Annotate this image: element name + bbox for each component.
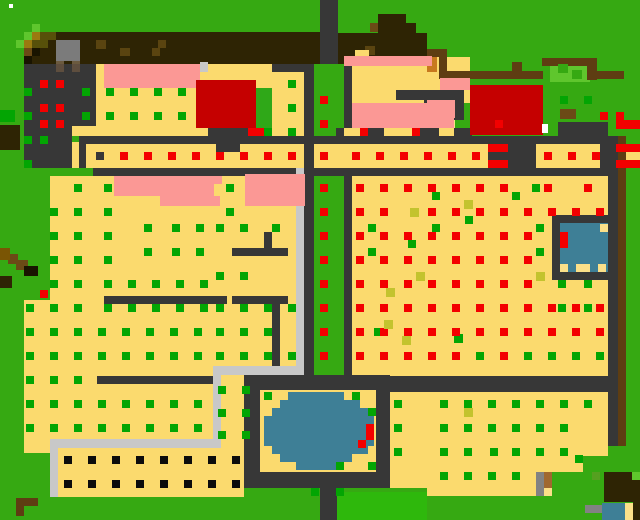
crop-dot-green: [512, 424, 520, 432]
crop-dot-green: [336, 462, 344, 470]
seed-dot-black: [136, 480, 144, 488]
seed-dot-black: [208, 456, 216, 464]
crop-dot-green: [536, 400, 544, 408]
crop-dot-green: [464, 400, 472, 408]
green-cell: [575, 455, 583, 463]
crop-dot-red: [356, 184, 364, 192]
seed-dot-black: [64, 480, 72, 488]
crop-dot-green: [512, 472, 520, 480]
dirt-spot: [158, 40, 166, 48]
dirt-strip: [378, 14, 406, 33]
roadside-brown: [16, 506, 24, 516]
crop-dot-red: [404, 328, 412, 336]
field-yellow: [72, 126, 96, 136]
crop-dot-green: [26, 304, 34, 312]
pond-notch: [600, 224, 608, 232]
road-and-structures: [420, 128, 439, 136]
gray-prop: [536, 472, 544, 496]
game-map[interactable]: [0, 0, 640, 520]
crop-dot-green: [98, 352, 106, 360]
road-and-structures: [344, 176, 352, 376]
crop-dot-green: [218, 386, 226, 394]
crop-dot-red: [404, 256, 412, 264]
pink-roof: [104, 64, 200, 88]
red-prop: [360, 128, 368, 136]
crop-dot-green: [368, 224, 376, 232]
crop-dot-green: [104, 184, 112, 192]
crop-dot-red: [428, 328, 436, 336]
walk-dot-dark: [224, 144, 232, 152]
road-and-structures: [508, 136, 536, 168]
dirt-spot: [96, 40, 106, 49]
crop-dot-green: [50, 304, 58, 312]
crop-dot-red: [476, 208, 484, 216]
crop-dot-red: [192, 152, 200, 160]
crop-dot-red: [428, 304, 436, 312]
crop-dot-green: [154, 112, 162, 120]
crop-dot-green: [152, 280, 160, 288]
crop-dot-green: [170, 400, 178, 408]
road-and-structures: [304, 64, 314, 375]
crop-dot-green: [50, 400, 58, 408]
crop-dot-olive: [410, 208, 419, 217]
pink-roof: [344, 56, 432, 66]
tree-darkolive: [40, 32, 56, 40]
tree-darkolive: [32, 40, 48, 48]
crop-dot-red: [500, 232, 508, 240]
crop-dot-red: [56, 120, 64, 128]
road-and-structures: [390, 376, 608, 392]
crop-dot-red: [56, 80, 64, 88]
crop-dot-green: [74, 184, 82, 192]
crop-dot-green: [122, 424, 130, 432]
crop-dot-green: [264, 304, 272, 312]
pond-water: [272, 446, 368, 454]
crop-dot-red: [428, 256, 436, 264]
crop-dot-green: [440, 400, 448, 408]
crop-dot-green: [194, 352, 202, 360]
crop-dot-red: [40, 120, 48, 128]
crop-dot-olive: [402, 336, 411, 345]
seed-dot-black: [208, 480, 216, 488]
crop-dot-green: [216, 352, 224, 360]
crop-dot-red: [240, 152, 248, 160]
road-and-structures: [232, 296, 288, 304]
road-and-structures: [104, 296, 227, 304]
crop-dot-green: [146, 352, 154, 360]
crop-dot-green: [24, 88, 32, 96]
crop-dot-green: [194, 328, 202, 336]
crop-dot-green: [288, 128, 296, 136]
road-and-structures: [208, 128, 248, 136]
crop-dot-green: [440, 424, 448, 432]
crop-dot-green: [432, 192, 440, 200]
crop-dot-green: [558, 304, 566, 312]
crop-dot-red: [428, 280, 436, 288]
seed-dot-black: [184, 480, 192, 488]
crop-dot-green: [176, 280, 184, 288]
crop-dot-red: [548, 208, 556, 216]
road-and-structures: [232, 248, 288, 256]
crop-dot-green: [240, 328, 248, 336]
tree-cells: [32, 24, 40, 32]
crop-dot-green: [464, 472, 472, 480]
road-and-structures: [336, 128, 344, 136]
crop-dot-green: [512, 192, 520, 200]
tree-gold: [24, 40, 32, 48]
crop-dot-green: [336, 488, 344, 496]
crop-dot-red: [320, 96, 328, 104]
field-yellow: [58, 453, 244, 497]
crop-dot-green: [152, 304, 160, 312]
crop-dot-green: [288, 304, 296, 312]
crop-dot-green: [240, 272, 248, 280]
crop-dot-green: [440, 472, 448, 480]
crop-dot-green: [288, 352, 296, 360]
crop-dot-red: [40, 104, 48, 112]
crop-dot-green: [536, 448, 544, 456]
green-cell: [0, 110, 15, 122]
seed-dot-black: [88, 456, 96, 464]
crop-dot-green: [288, 104, 296, 112]
field-yellow: [50, 176, 304, 376]
crop-dot-red: [476, 280, 484, 288]
crop-dot-green: [264, 128, 272, 136]
road-and-structures: [320, 487, 337, 520]
crop-dot-red: [452, 280, 460, 288]
crop-dot-red: [548, 304, 556, 312]
seed-dot-black: [160, 456, 168, 464]
tan-prop: [544, 472, 552, 488]
pond-water: [296, 462, 338, 470]
crop-dot-green: [368, 462, 376, 470]
cream-cell: [544, 488, 552, 496]
roadside-brown: [618, 136, 626, 446]
crop-dot-red: [120, 152, 128, 160]
seed-dot-black: [64, 456, 72, 464]
roadside-brown: [512, 62, 522, 79]
crop-dot-red: [320, 120, 328, 128]
seed-dot-black: [232, 480, 240, 488]
crop-dot-green: [536, 224, 544, 232]
crop-dot-red: [400, 152, 408, 160]
crop-dot-red: [320, 208, 328, 216]
red-prop: [616, 120, 640, 129]
road-and-structures: [264, 232, 272, 248]
crop-dot-green: [74, 256, 82, 264]
crop-dot-green: [104, 304, 112, 312]
crop-dot-green: [178, 88, 186, 96]
crop-dot-green: [128, 280, 136, 288]
crop-dot-green: [104, 208, 112, 216]
crop-dot-red: [320, 304, 328, 312]
crop-dot-green: [98, 424, 106, 432]
crop-dot-green: [170, 424, 178, 432]
crop-dot-green: [26, 352, 34, 360]
roadside-brown: [592, 71, 624, 79]
crop-dot-green: [512, 448, 520, 456]
crop-dot-green: [196, 248, 204, 256]
crop-dot-red: [596, 208, 604, 216]
crop-dot-green: [74, 424, 82, 432]
crop-dot-red: [500, 328, 508, 336]
seed-dot-black: [112, 456, 120, 464]
crop-dot-green: [216, 272, 224, 280]
light-gray-path: [213, 375, 221, 439]
crop-dot-green: [74, 376, 82, 384]
crop-dot-green: [50, 280, 58, 288]
pond-notch: [576, 264, 590, 272]
crop-dot-green: [146, 328, 154, 336]
crop-dot-red: [500, 352, 508, 360]
crop-dot-green: [144, 248, 152, 256]
crop-dot-green: [104, 232, 112, 240]
crop-dot-red: [596, 304, 604, 312]
crop-dot-green: [490, 448, 498, 456]
crop-dot-red: [544, 152, 552, 160]
crop-dot-red: [288, 152, 296, 160]
seed-dot-black: [232, 456, 240, 464]
pond-notch: [598, 264, 606, 272]
pond-water: [280, 454, 352, 462]
red-prop: [488, 160, 508, 168]
crop-dot-red: [524, 256, 532, 264]
crop-dot-red: [452, 304, 460, 312]
red-prop: [488, 144, 508, 152]
road-and-structures: [97, 376, 213, 384]
crop-dot-green: [104, 280, 112, 288]
pink-roof: [160, 196, 220, 206]
crop-dot-red: [500, 184, 508, 192]
light-gray-path: [50, 448, 58, 497]
crop-dot-red: [380, 280, 388, 288]
crop-dot-green: [178, 112, 186, 120]
crop-dot-red: [448, 152, 456, 160]
crop-dot-green: [548, 352, 556, 360]
crop-dot-green: [24, 136, 32, 144]
seed-dot-black: [88, 480, 96, 488]
crop-dot-red: [452, 184, 460, 192]
crop-dot-green: [128, 304, 136, 312]
red-prop: [495, 120, 503, 128]
pond-water: [602, 503, 625, 520]
crop-dot-red: [320, 352, 328, 360]
crop-dot-red: [404, 304, 412, 312]
crop-dot-red: [356, 208, 364, 216]
crop-dot-red: [356, 304, 364, 312]
tree-dark: [32, 48, 40, 56]
crop-dot-green: [488, 400, 496, 408]
crop-dot-red: [472, 152, 480, 160]
red-prop: [412, 128, 420, 136]
crop-dot-green: [218, 409, 226, 417]
crop-dot-green: [26, 424, 34, 432]
field-yellow: [71, 142, 79, 168]
crop-dot-red: [320, 328, 328, 336]
crop-dot-red: [476, 232, 484, 240]
crop-dot-green: [24, 112, 32, 120]
crop-dot-red: [524, 208, 532, 216]
crop-dot-green: [24, 160, 32, 168]
crop-dot-green: [560, 400, 568, 408]
crop-dot-green: [170, 352, 178, 360]
crop-dot-red: [424, 152, 432, 160]
crop-dot-green: [311, 488, 319, 496]
crop-dot-red: [592, 152, 600, 160]
crop-dot-red: [376, 152, 384, 160]
crop-dot-green: [172, 224, 180, 232]
crop-dot-green: [74, 304, 82, 312]
crop-dot-green: [560, 424, 568, 432]
crop-dot-green: [130, 88, 138, 96]
crop-dot-red: [428, 232, 436, 240]
crop-dot-green: [50, 232, 58, 240]
crop-dot-green: [98, 400, 106, 408]
road-and-structures: [272, 64, 304, 72]
pond-notch: [560, 264, 568, 272]
crop-dot-green: [104, 256, 112, 264]
road-and-structures: [344, 64, 352, 128]
crop-dot-red: [356, 232, 364, 240]
crop-dot-red: [596, 328, 604, 336]
seed-dot-black: [112, 480, 120, 488]
crop-dot-red: [356, 280, 364, 288]
crop-dot-green: [200, 304, 208, 312]
walk-dot-dark: [232, 144, 240, 152]
crop-dot-green: [170, 328, 178, 336]
crop-dot-green: [536, 248, 544, 256]
crop-dot-green: [596, 352, 604, 360]
crop-dot-green: [122, 328, 130, 336]
crop-dot-green: [584, 400, 592, 408]
crop-dot-red: [320, 256, 328, 264]
crop-dot-red: [380, 352, 388, 360]
crop-dot-red: [500, 256, 508, 264]
crop-dot-green: [74, 352, 82, 360]
crop-dot-red: [320, 232, 328, 240]
crop-dot-green: [558, 280, 566, 288]
crop-dot-red: [356, 328, 364, 336]
crop-dot-red: [404, 184, 412, 192]
crop-dot-green: [74, 280, 82, 288]
crop-dot-green: [26, 328, 34, 336]
road-and-structures: [96, 152, 104, 160]
crop-dot-green: [368, 248, 376, 256]
crop-dot-green: [464, 448, 472, 456]
pen-grass-cells: [572, 70, 582, 79]
crop-dot-olive: [416, 272, 425, 281]
crop-dot-green: [82, 88, 90, 96]
crop-dot-red: [548, 328, 556, 336]
crop-dot-green: [218, 431, 226, 439]
crop-dot-green: [40, 136, 48, 144]
pond-water: [288, 392, 344, 400]
crop-dot-red: [476, 256, 484, 264]
field-yellow: [24, 376, 50, 453]
crop-dot-red: [476, 184, 484, 192]
crop-dot-red: [144, 152, 152, 160]
crop-dot-green: [240, 304, 248, 312]
crop-dot-green: [536, 424, 544, 432]
road-and-structures: [320, 0, 338, 64]
crop-dot-green: [476, 352, 484, 360]
road-and-structures: [272, 304, 280, 375]
red-building: [196, 80, 256, 128]
road-and-structures: [608, 136, 618, 446]
crop-dot-green: [488, 424, 496, 432]
crop-dot-green: [122, 400, 130, 408]
crop-dot-green: [106, 112, 114, 120]
crop-dot-green: [50, 376, 58, 384]
crop-dot-green: [50, 256, 58, 264]
crop-dot-green: [172, 248, 180, 256]
crop-dot-green: [560, 448, 568, 456]
crop-dot-green: [216, 224, 224, 232]
crop-dot-green: [240, 352, 248, 360]
grass-bright-patch: [337, 492, 427, 520]
crop-dot-red: [500, 280, 508, 288]
crop-dot-green: [440, 448, 448, 456]
crop-dot-green: [226, 208, 234, 216]
crop-dot-red: [544, 184, 552, 192]
crop-dot-green: [154, 88, 162, 96]
crop-dot-green: [74, 208, 82, 216]
tree-dark: [24, 266, 38, 276]
crop-dot-green: [560, 96, 568, 104]
crop-dot-green: [368, 408, 376, 416]
crop-dot-red: [452, 256, 460, 264]
crop-dot-red: [320, 184, 328, 192]
crop-dot-red: [500, 304, 508, 312]
pink-roof: [214, 176, 222, 184]
crop-dot-green: [242, 386, 250, 394]
crop-dot-olive: [384, 320, 393, 329]
crop-dot-green: [194, 424, 202, 432]
crop-dot-green: [584, 304, 592, 312]
red-prop: [616, 144, 640, 152]
crop-dot-green: [146, 424, 154, 432]
road-and-structures: [396, 90, 464, 100]
crop-dot-red: [356, 352, 364, 360]
tree-gold: [32, 32, 40, 40]
crop-dot-red: [56, 104, 64, 112]
door-cells: [72, 64, 80, 72]
walk-dot-dark: [216, 144, 224, 152]
crop-dot-green: [216, 328, 224, 336]
crop-dot-green: [242, 409, 250, 417]
crop-dot-green: [272, 224, 280, 232]
crop-dot-red: [356, 256, 364, 264]
crop-dot-red: [524, 280, 532, 288]
dirt-strip: [406, 23, 416, 43]
crop-dot-red: [380, 304, 388, 312]
crop-dot-red: [380, 208, 388, 216]
dirt-strip: [0, 125, 20, 150]
crop-dot-green: [584, 280, 592, 288]
roadside-brown: [16, 498, 38, 506]
crop-dot-green: [288, 80, 296, 88]
crop-dot-red: [428, 184, 436, 192]
crop-dot-red: [452, 352, 460, 360]
pink-roof: [440, 78, 470, 90]
tree-cells: [24, 32, 32, 40]
crop-dot-green: [264, 392, 272, 400]
crop-dot-green: [200, 280, 208, 288]
door-cells: [56, 64, 64, 72]
red-prop: [366, 424, 374, 440]
crop-dot-red: [320, 280, 328, 288]
crop-dot-green: [122, 352, 130, 360]
